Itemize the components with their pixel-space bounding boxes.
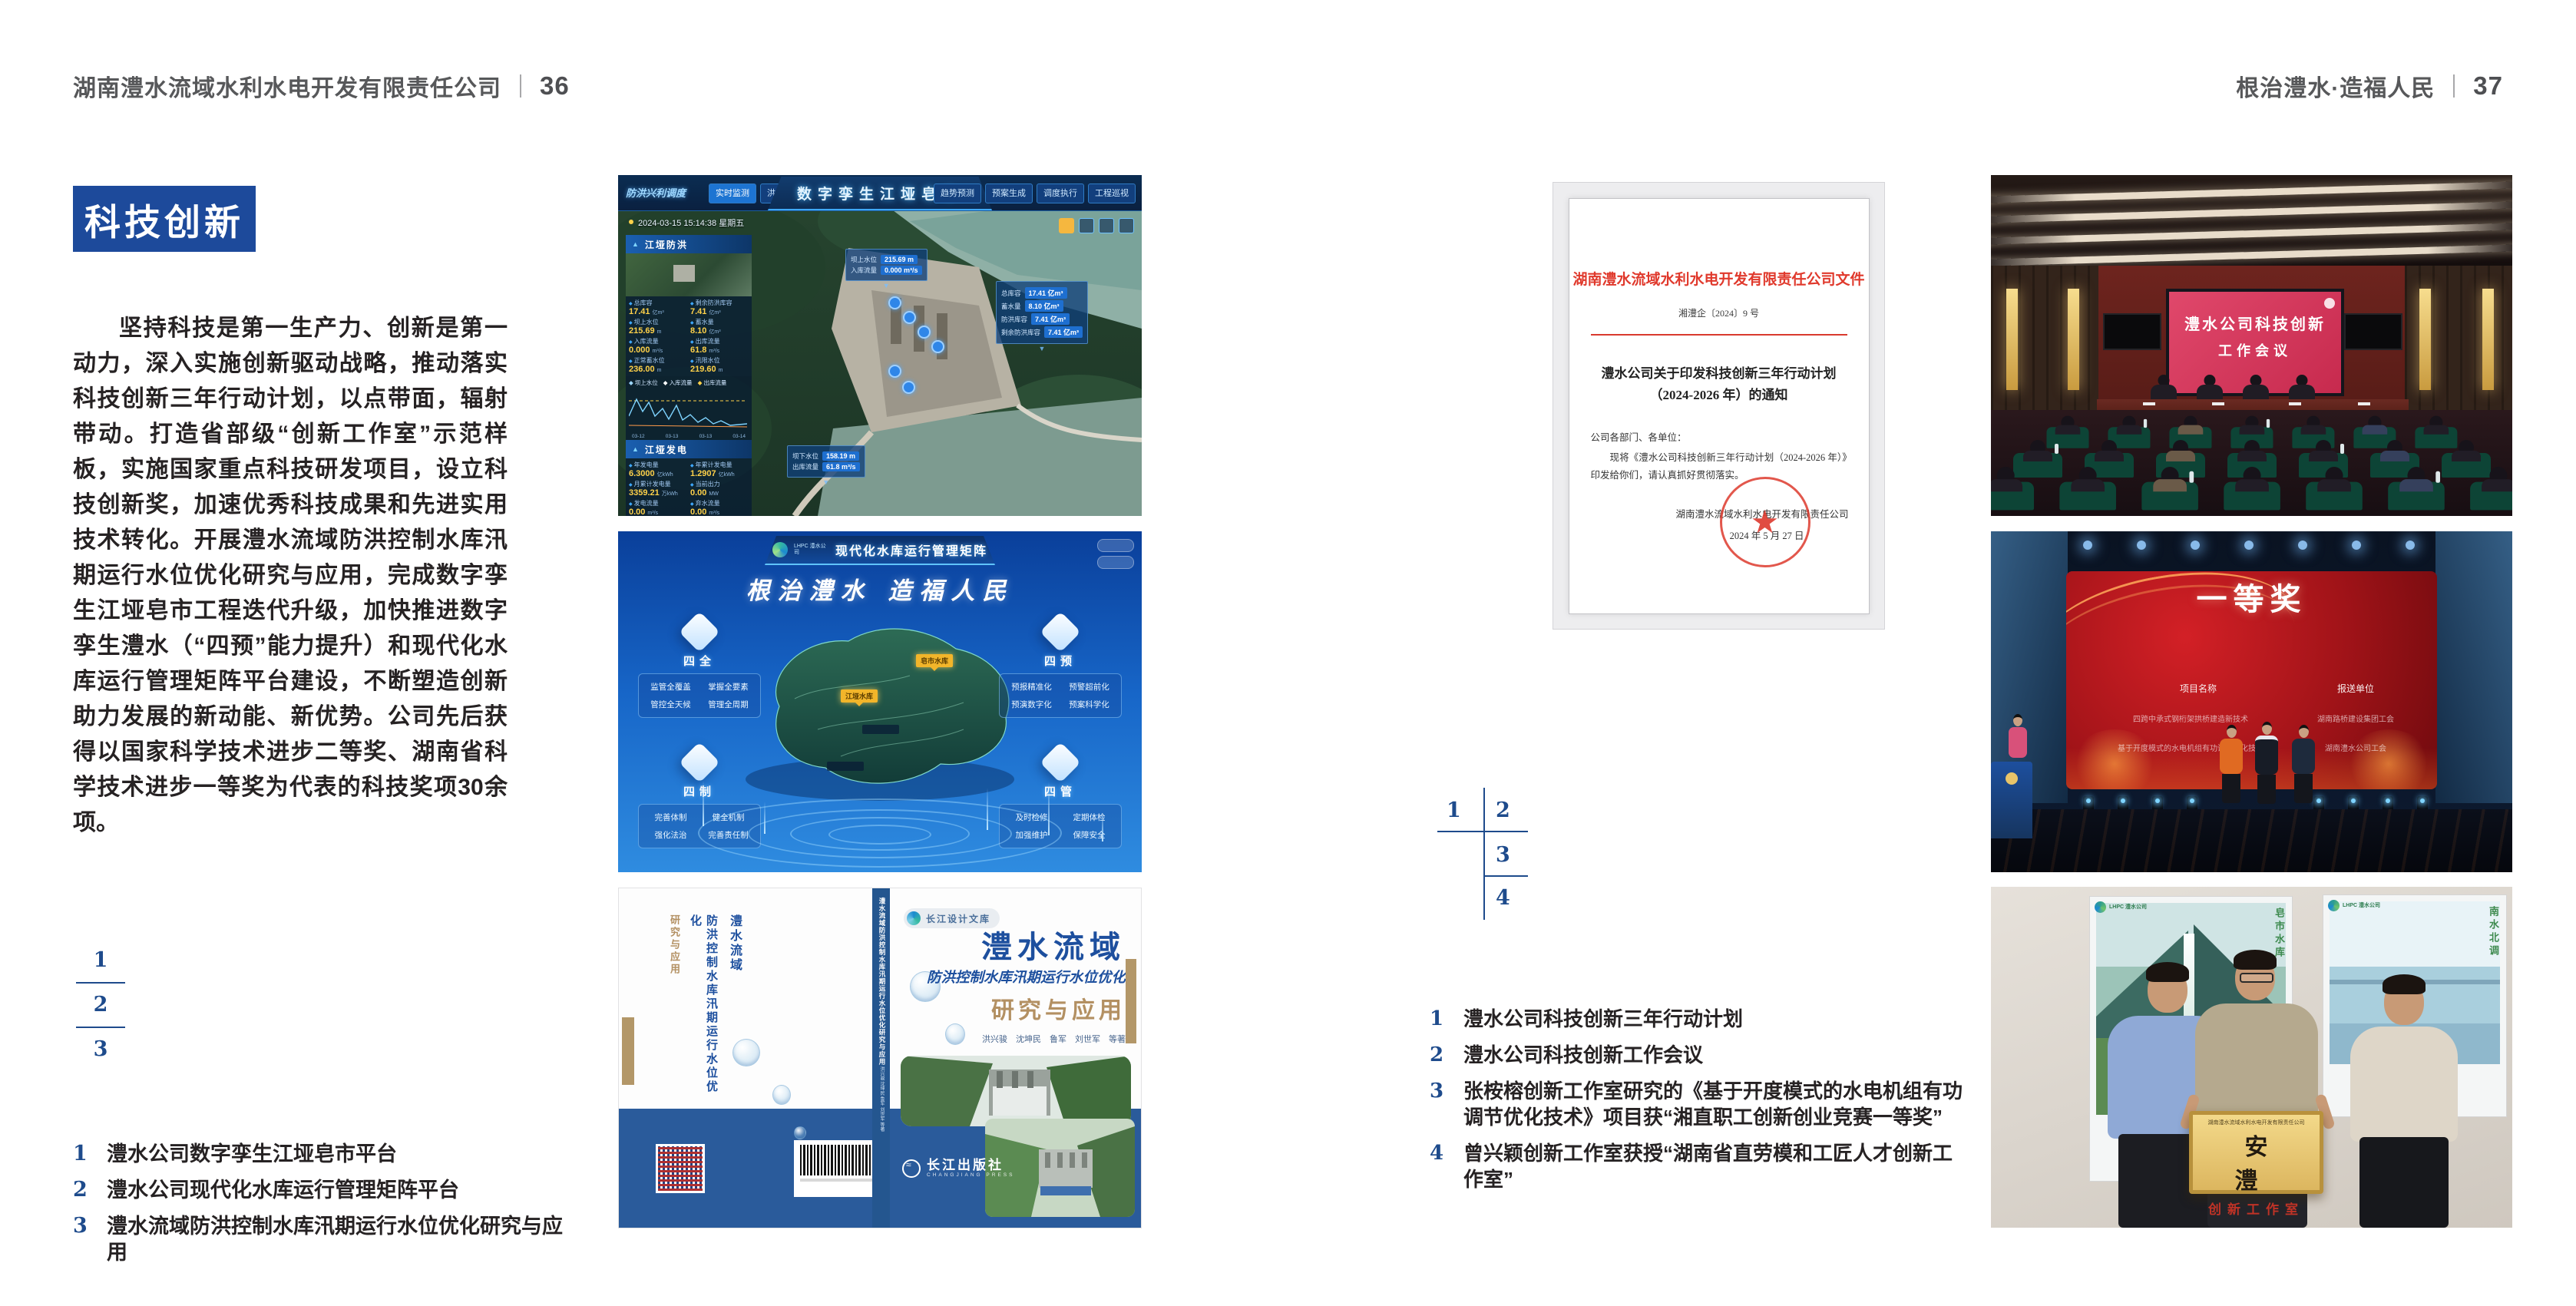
caption-text: 澧水公司数字孪生江垭皂市平台: [107, 1141, 397, 1167]
slogan: 根治澧水·造福人民: [2236, 69, 2435, 103]
changjiang-logo-icon: [907, 911, 921, 925]
group-items: 监管全覆盖掌握全要素 管控全天候管理全周期: [638, 673, 761, 718]
locate-icon: [1099, 218, 1114, 233]
publisher-logo-icon: [902, 1159, 921, 1178]
dam-thumbnail: [626, 253, 752, 296]
figure-matrix-platform: LHPC 澧水公司 现代化水库运行管理矩阵 根治澧水 造福人民 江垭水库 皂市水…: [618, 531, 1142, 872]
body-paragraph: 坚持科技是第一生产力、创新是第一动力，深入实施创新驱动战略，推动落实科技创新三年…: [73, 311, 508, 841]
document-paper: 湖南澧水流域水利水电开发有限责任公司文件 湘澧企〔2024〕9 号 澧水公司关于…: [1569, 198, 1870, 614]
document-body: 现将《澧水公司科技创新三年行动计划（2024-2026 年）》印发给你们，请认真…: [1591, 449, 1847, 484]
photo-award-ceremony: 一等奖 项目名称 报送单位 四跨中承式钢桁架拱桥建造新技术 基于开度模式的水电机…: [1991, 531, 2512, 872]
twin-tab: 预案生成: [985, 184, 1033, 203]
caption-number: 2: [73, 1177, 93, 1203]
toolbar-pill: [1097, 539, 1134, 552]
lhpc-logo-icon: LHPC 澧水公司: [2328, 900, 2380, 911]
caption-text: 曾兴颖创新工作室获授“湖南省直劳模和工匠人才创新工作室”: [1463, 1140, 1971, 1192]
document-salutation: 公司各部门、各单位：: [1591, 429, 1687, 444]
gate-marker-icon: [888, 365, 901, 378]
back-title-line: 研究与应用: [667, 914, 682, 1106]
studio-wall-right: [2435, 531, 2512, 803]
twin-tab: 实时监测: [709, 184, 756, 203]
index-divider: [76, 982, 125, 984]
spine-title: 澧水流域防洪控制水库汛期运行水位优化研究与应用: [878, 898, 887, 1066]
back-title-line: 防洪控制水库汛期运行水位优化: [687, 914, 719, 1106]
poster-right-caption: 南水北调: [2485, 906, 2500, 958]
water-drop: [945, 1023, 965, 1045]
lhpc-logo-icon: LHPC 澧水公司: [2095, 901, 2147, 913]
stat-cell: 入库流量0.000m³/s: [629, 337, 687, 355]
figure-official-document: 湖南澧水流域水利水电开发有限责任公司文件 湘澧企〔2024〕9 号 澧水公司关于…: [1553, 182, 1885, 630]
wall-tv: [2344, 313, 2402, 350]
book-title-tail: 研究与应用: [991, 991, 1126, 1025]
book-title-main: 澧水流域: [981, 922, 1126, 967]
publisher-name-en: CHANGJIANG PRESS: [927, 1172, 1014, 1178]
matrix-group-siyu: 四预 预报精准化预警超前化 预演数字化预案科学化: [999, 617, 1122, 718]
innovation-workstudio-plaque: 湖南澧水流域水利水电开发有限责任公司 安 澧 创新工作室: [2189, 1111, 2323, 1194]
chart-legend: 坝上水位 入库流量 出库流量: [629, 379, 749, 387]
stat-cell: 剩余防洪库容7.41亿m³: [690, 299, 749, 316]
group-title: 四制: [638, 783, 761, 799]
presenter-silhouette: [2254, 722, 2280, 804]
stat-cell: 坝上水位215.69m: [629, 318, 687, 336]
water-drop: [794, 1126, 806, 1139]
book-front-cover: 长江设计文库 澧水流域 防洪控制水库汛期运行水位优化 研究与应用 洪兴骏 沈坤民…: [890, 888, 1142, 1228]
caption-text: 澧水流域防洪控制水库汛期运行水位优化研究与应用: [107, 1213, 564, 1265]
book-spine: 澧水流域防洪控制水库汛期运行水位优化研究与应用 洪兴骏 沈坤民 鲁军 刘世军 等…: [872, 888, 890, 1228]
gate-marker-icon: [931, 340, 944, 353]
flood-panel-title: 江垭防洪: [626, 235, 752, 253]
matrix-slogan: 根治澧水 造福人民: [618, 571, 1142, 606]
monitor-icon: [679, 611, 720, 653]
group-title: 四全: [638, 653, 761, 669]
map-marker-small: [862, 725, 899, 734]
group-title: 四管: [999, 783, 1122, 799]
index-vline: [1483, 788, 1485, 920]
caption-number: 3: [73, 1213, 93, 1265]
group-items: 预报精准化预警超前化 预演数字化预案科学化: [999, 673, 1122, 718]
water-level-chart: 坝上水位 入库流量 出库流量 03-1203-13 03-1303-14: [626, 376, 752, 440]
twin-timestamp: 2024-03-15 15:14:38 星期五: [629, 217, 744, 229]
fullscreen-icon: [1119, 218, 1134, 233]
gate-marker-icon: [903, 311, 916, 324]
document-header: 湖南澧水流域水利水电开发有限责任公司文件: [1569, 268, 1869, 289]
screen-title-line2: 工作会议: [2169, 340, 2341, 360]
layers-icon: [1079, 218, 1094, 233]
tooltip-capacity: 总库容17.41 亿m³ 蓄水量8.10 亿m³ 防洪库容7.41 亿m³ 剩余…: [996, 281, 1088, 344]
speaker-silhouette: [2240, 375, 2271, 401]
lhpc-logo-icon: [772, 542, 788, 557]
chart-x-labels: 03-1203-13 03-1303-14: [629, 434, 749, 439]
light-pilaster: [2482, 289, 2494, 390]
stat-cell: 蓄水量8.10亿m³: [690, 318, 749, 336]
publisher-name: 长江出版社: [927, 1159, 1014, 1172]
stat-cell: 年发电量6.3000亿kWh: [629, 461, 687, 478]
group-title: 四预: [999, 653, 1122, 669]
qr-code: [656, 1144, 705, 1193]
running-head-left: 湖南澧水流域水利水电开发有限责任公司 36: [73, 69, 570, 103]
map-marker-small: [827, 762, 864, 771]
stat-cell: 总库容17.41亿m³: [629, 299, 687, 316]
plaque-subtitle: 创新工作室: [2193, 1199, 2320, 1218]
speaker-silhouette: [2287, 375, 2317, 401]
header-divider: [2453, 74, 2455, 98]
spine-authors: 洪兴骏 沈坤民 鲁军 刘世军 等著: [878, 1066, 885, 1132]
document-number: 湘澧企〔2024〕9 号: [1569, 306, 1869, 319]
twin-left-hud: 江垭防洪 总库容17.41亿m³ 剩余防洪库容7.41亿m³ 坝上水位215.6…: [626, 235, 752, 516]
figure-index-number: 1: [1447, 798, 1461, 822]
matrix-header: LHPC 澧水公司 现代化水库运行管理矩阵: [765, 536, 995, 565]
tooltip-downstream: 坝下水位158.19 m 出库流量61.8 m³/s: [787, 445, 865, 478]
matrix-title: 现代化水库运行管理矩阵: [835, 541, 987, 559]
caption-number: 3: [1430, 1078, 1450, 1130]
stat-cell: 汛限水位219.60m: [690, 356, 749, 374]
header-divider: [520, 74, 521, 98]
twin-module-label: 防洪兴利调度: [626, 185, 686, 200]
figure-index-number: 1: [76, 946, 125, 975]
map-marker-jiangya: 江垭水库: [841, 689, 878, 703]
figure-digital-twin-platform: 防洪兴利调度 实时监测 洪水预报 防洪预警 数字孪生江垭皂市 趋势预测 预案生成…: [618, 175, 1142, 516]
watershed-map: [733, 614, 1027, 806]
captions-right: 1 澧水公司科技创新三年行动计划 2 澧水公司科技创新工作会议 3 张桉榕创新工…: [1430, 1006, 1971, 1202]
institution-icon: [679, 742, 720, 783]
caption-number: 1: [1430, 1006, 1450, 1032]
book-authors: 洪兴骏 沈坤民 鲁军 刘世军 等著: [982, 1033, 1126, 1045]
twin-tab: 调度执行: [1037, 184, 1084, 203]
map-marker-zaoshi: 皂市水库: [916, 654, 953, 667]
book-title-sub: 防洪控制水库汛期运行水位优化: [927, 967, 1126, 987]
document-title: 澧水公司关于印发科技创新三年行动计划 （2024-2026 年）的通知: [1569, 363, 1869, 406]
light-pilaster: [2068, 289, 2079, 390]
twin-tabs-right: 趋势预测 预案生成 调度执行 工程巡视: [934, 184, 1136, 203]
poster-left-caption: 皂市水库: [2271, 908, 2286, 960]
index-hline: [1437, 831, 1528, 832]
caption-text: 澧水公司现代化水库运行管理矩阵平台: [107, 1177, 459, 1203]
caption-number: 2: [1430, 1042, 1450, 1068]
caption-row: 1 澧水公司数字孪生江垭皂市平台: [73, 1141, 564, 1167]
dam-photo-front: [901, 1056, 1131, 1126]
award-org-row: 湖南路桥建设集团工会: [2290, 713, 2421, 724]
plaque-org-line: 湖南澧水流域水利水电开发有限责任公司: [2193, 1119, 2320, 1126]
toolbar-pill: [1097, 556, 1134, 569]
index-hline: [1484, 875, 1528, 877]
power-panel-title: 江垭发电: [626, 440, 752, 458]
book-back-cover: 澧水流域 防洪控制水库汛期运行水位优化 研究与应用: [619, 888, 872, 1228]
host-podium: [1991, 762, 2032, 838]
award-col2-header: 报送单位: [2290, 682, 2421, 695]
gate-marker-icon: [888, 296, 901, 309]
stat-cell: 弃水流量0.00m³/s: [690, 499, 749, 516]
caption-row: 1 澧水公司科技创新三年行动计划: [1430, 1006, 1971, 1032]
caption-row: 3 澧水流域防洪控制水库汛期运行水位优化研究与应用: [73, 1213, 564, 1265]
page-number-right: 37: [2473, 71, 2503, 101]
document-red-rule: [1591, 334, 1847, 336]
light-pilaster: [2006, 289, 2018, 390]
ceiling: [1991, 175, 2512, 267]
caption-number: 1: [73, 1141, 93, 1167]
official-seal: ★: [1720, 477, 1810, 567]
user-icon: [1059, 218, 1074, 233]
flood-stats: 总库容17.41亿m³ 剩余防洪库容7.41亿m³ 坝上水位215.69m 蓄水…: [626, 296, 752, 376]
figure-index-number: 4: [1496, 886, 1510, 910]
stat-cell: 当前出力0.00MW: [690, 480, 749, 498]
power-stats: 年发电量6.3000亿kWh 年累计发电量1.2907亿kWh 月累计发电量33…: [626, 458, 752, 516]
figure-index-number: 3: [76, 1035, 125, 1064]
photo-workstudio-group: LHPC 澧水公司 皂市水库 LHPC 澧水公司 南水北调: [1991, 887, 2512, 1228]
caption-row: 2 澧水公司科技创新工作会议: [1430, 1042, 1971, 1068]
water-drop: [732, 1039, 760, 1066]
wall-tv: [2103, 313, 2161, 350]
photo-innovation-meeting: 澧水公司科技创新 工作会议: [1991, 175, 2512, 516]
awardee-silhouette: [2290, 725, 2316, 803]
tan-block: [1126, 959, 1136, 1043]
figure-index-left: 1 2 3: [76, 946, 125, 1064]
publisher-mark: 长江出版社 CHANGJIANG PRESS: [902, 1159, 1014, 1178]
gate-marker-icon: [902, 381, 915, 394]
caption-text: 澧水公司科技创新三年行动计划: [1463, 1006, 1743, 1032]
figure-index-number: 2: [1496, 798, 1510, 822]
tooltip-upstream: 坝上水位215.69 m 入库流量0.000 m³/s: [845, 249, 928, 281]
barcode: [794, 1140, 880, 1197]
stat-cell: 正常蓄水位236.00m: [629, 356, 687, 374]
tan-block: [622, 1017, 634, 1085]
award-title: 一等奖: [1991, 574, 2512, 619]
awardee-silhouette: [2218, 725, 2244, 803]
figure-index-number: 3: [1496, 843, 1510, 867]
running-head-right: 根治澧水·造福人民 37: [2236, 69, 2503, 103]
back-vertical-title: 澧水流域 防洪控制水库汛期运行水位优化 研究与应用: [662, 914, 743, 1106]
captions-left: 1 澧水公司数字孪生江垭皂市平台 2 澧水公司现代化水库运行管理矩阵平台 3 澧…: [73, 1141, 564, 1275]
stat-cell: 年累计发电量1.2907亿kWh: [690, 461, 749, 478]
maintenance-icon: [1040, 742, 1081, 783]
back-title-line: 澧水流域: [725, 914, 743, 1106]
page-number-left: 36: [540, 71, 570, 101]
section-title: 科技创新: [73, 186, 256, 252]
gate-marker-icon: [918, 326, 931, 339]
host-silhouette: [2006, 714, 2029, 758]
audience-row: [1991, 482, 2512, 511]
company-name: 湖南澧水流域水利水电开发有限责任公司: [73, 69, 501, 103]
speaker-silhouette: [2194, 375, 2225, 401]
light-pilaster: [2419, 289, 2431, 390]
screen-title-line1: 澧水公司科技创新: [2169, 312, 2341, 334]
twin-tab: 工程巡视: [1088, 184, 1136, 203]
stat-cell: 月累计发电量3359.21万kWh: [629, 480, 687, 498]
matrix-group-siquan: 四全 监管全覆盖掌握全要素 管控全天候管理全周期: [638, 617, 761, 718]
stat-cell: 出库流量61.8m³/s: [690, 337, 749, 355]
matrix-brand: LHPC 澧水公司: [794, 544, 829, 556]
award-col1-header: 项目名称: [2114, 682, 2283, 695]
caption-text: 张桉榕创新工作室研究的《基于开度模式的水电机组有功调节优化技术》项目获“湘直职工…: [1463, 1078, 1971, 1130]
figure-book-cover: 澧水流域 防洪控制水库汛期运行水位优化 研究与应用 澧水流域防洪控制水库汛期运行…: [618, 888, 1142, 1228]
speaker-silhouette: [2148, 375, 2179, 401]
twin-tab: 趋势预测: [934, 184, 981, 203]
figure-index-number: 2: [76, 990, 125, 1020]
stage-floor: [1991, 809, 2512, 872]
twin-corner-icons: [1059, 218, 1134, 233]
stat-cell: 发电流量0.00m³/s: [629, 499, 687, 516]
caption-row: 4 曾兴颖创新工作室获授“湖南省直劳模和工匠人才创新工作室”: [1430, 1140, 1971, 1192]
caption-row: 3 张桉榕创新工作室研究的《基于开度模式的水电机组有功调节优化技术》项目获“湘直…: [1430, 1078, 1971, 1130]
chart-plot: [629, 387, 747, 430]
forecast-icon: [1040, 611, 1081, 653]
caption-row: 2 澧水公司现代化水库运行管理矩阵平台: [73, 1177, 564, 1203]
caption-text: 澧水公司科技创新工作会议: [1463, 1042, 1703, 1068]
index-divider: [76, 1027, 125, 1028]
report-spread: 湖南澧水流域水利水电开发有限责任公司 36 根治澧水·造福人民 37 科技创新 …: [0, 0, 2576, 1306]
caption-number: 4: [1430, 1140, 1450, 1192]
water-drop: [772, 1085, 791, 1105]
plaque-title: 安 澧: [2193, 1128, 2320, 1195]
